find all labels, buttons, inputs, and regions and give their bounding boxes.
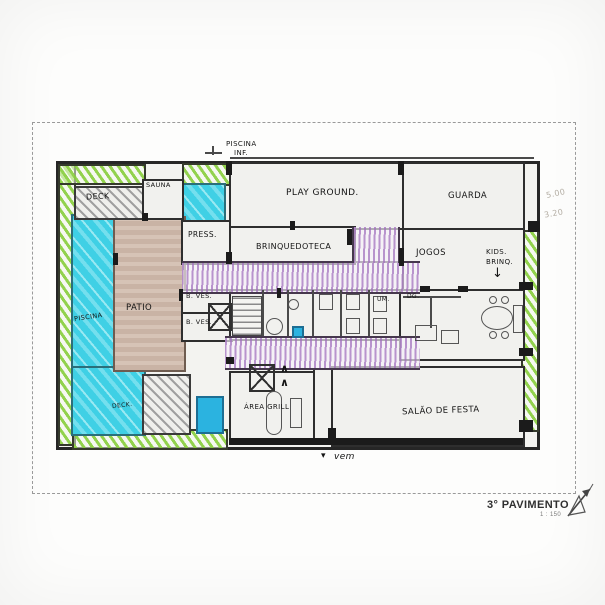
- press-label: PRESS.: [188, 230, 217, 239]
- fixture-box-1: [319, 294, 333, 310]
- door-jamb: [226, 161, 232, 175]
- door-jamb: [226, 357, 234, 364]
- deck-label: DECK: [86, 191, 110, 201]
- sheet-scale: 1 : 150: [540, 512, 561, 518]
- patio-floor: [113, 216, 186, 372]
- sketch-sheet: ∧ ∧ DECK SAUNA PISCINA PATIO PRESS. PLAY…: [0, 0, 605, 605]
- entry-note: vem: [334, 452, 355, 462]
- deck-bottom-floor: [142, 374, 191, 435]
- grill-fixture: [266, 391, 282, 435]
- service-shaft: [249, 364, 275, 392]
- patio-label: PATIO: [126, 303, 152, 313]
- core-partition-4: [340, 290, 342, 336]
- sink-fixture: [288, 299, 299, 310]
- fixture-box-5: [373, 318, 387, 334]
- brinquedoteca-label: BRINQUEDOTECA: [256, 242, 331, 251]
- door-jamb: [420, 286, 430, 292]
- corridor-vertical: [352, 227, 400, 263]
- piscina-inf-note-line1: PISCINA: [226, 140, 257, 148]
- guarda-label: GUARDA: [448, 191, 487, 201]
- bves1-label: B. VES.: [186, 292, 212, 300]
- corridor-upper: [182, 261, 420, 294]
- bves2-label: B. VES.: [186, 318, 212, 326]
- um-label: UM.: [377, 296, 390, 303]
- core-partition-2: [287, 290, 289, 336]
- fixture-box-2: [346, 294, 360, 310]
- callout-leader-tick: [212, 146, 214, 155]
- counter-box-1: [415, 325, 437, 341]
- kids-chair-3: [489, 331, 497, 339]
- area-grill-label: ÁREA GRILL: [244, 403, 289, 411]
- door-jamb: [179, 289, 183, 301]
- door-jamb: [328, 428, 336, 442]
- dg-label: DG.: [407, 293, 419, 300]
- kids-chair-2: [501, 296, 509, 304]
- door-jamb: [458, 286, 468, 292]
- kids-bench: [513, 305, 523, 333]
- door-jamb: [142, 213, 148, 221]
- shower-box: [292, 326, 304, 338]
- door-jamb: [226, 252, 232, 264]
- stairs: [232, 296, 262, 336]
- entry-arrow-icon: ▾: [321, 451, 326, 461]
- door-jamb: [398, 161, 404, 175]
- door-jamb: [277, 288, 281, 298]
- grill-counter: [290, 398, 302, 428]
- core-partition-1: [262, 290, 264, 336]
- sauna-label: SAUNA: [146, 181, 171, 189]
- counter-line-v: [430, 298, 432, 328]
- door-jamb: [519, 282, 533, 290]
- jogos-label: JOGOS: [416, 248, 446, 258]
- hedge-top-left: [58, 164, 146, 185]
- core-partition-5: [368, 290, 370, 336]
- stair-chevron-1: ∧: [280, 362, 289, 375]
- door-jamb: [347, 229, 352, 245]
- door-jamb: [528, 221, 540, 232]
- kids-chair-1: [489, 296, 497, 304]
- kids-chair-4: [501, 331, 509, 339]
- kids-brinq-label-line2: BRINQ.: [486, 258, 513, 266]
- door-jamb: [113, 253, 118, 265]
- door-jamb: [399, 248, 404, 266]
- kids-brinq-label-line1: KIDS.: [486, 248, 507, 256]
- core-partition-3: [312, 290, 314, 336]
- kids-arrow-icon: ↓: [492, 266, 503, 281]
- pool-infant: [182, 183, 226, 224]
- stair-chevron-2: ∧: [280, 376, 289, 389]
- top-double-line: [230, 157, 534, 159]
- kids-table: [481, 306, 513, 330]
- door-jamb: [519, 420, 533, 432]
- sheet-title: 3° PAVIMENTO: [487, 499, 569, 511]
- wc-fixture: [266, 318, 283, 335]
- playground-label: PLAY GROUND.: [286, 188, 359, 198]
- wall-bottom-heavy: [229, 438, 523, 445]
- door-jamb: [290, 221, 295, 230]
- north-arrow-icon: [565, 483, 595, 521]
- counter-box-2: [441, 330, 459, 344]
- door-jamb: [519, 348, 533, 356]
- piscina-inf-note-line2: INF.: [234, 149, 248, 157]
- spa-small-pool: [196, 396, 224, 434]
- fixture-box-4: [346, 318, 360, 334]
- deck-wet-area: [71, 366, 146, 436]
- elevator-shaft: [208, 303, 232, 331]
